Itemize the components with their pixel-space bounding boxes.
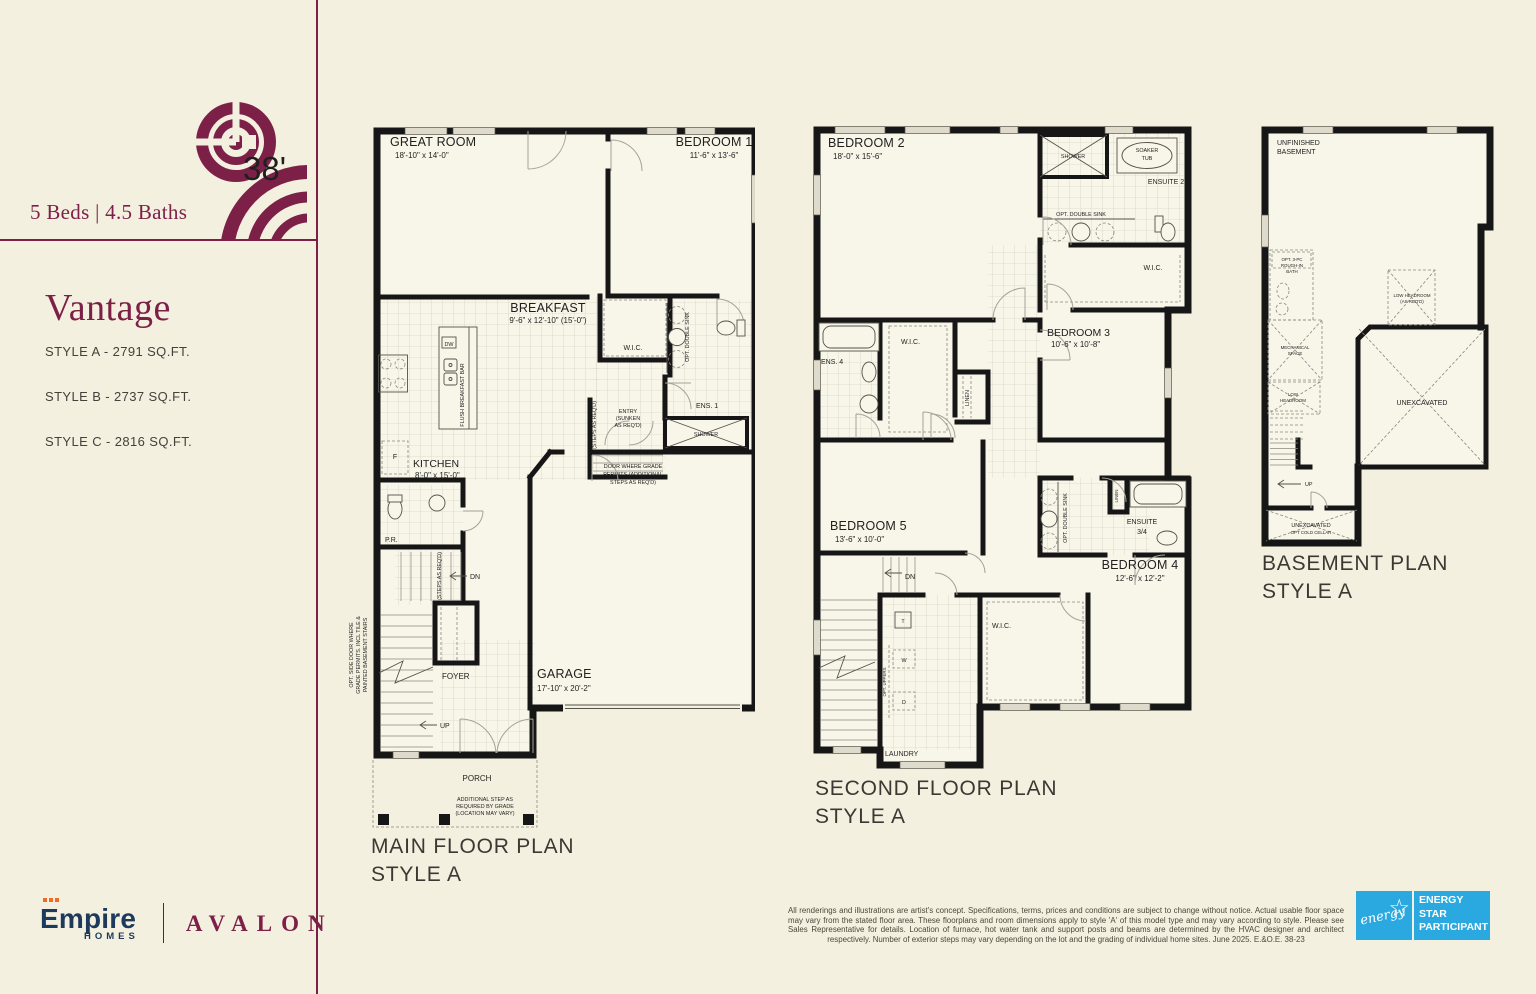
main-floor-plan-drawing: GREAT ROOM 18'-10" x 14'-0" BEDROOM 1 11… bbox=[347, 115, 755, 860]
label-entry-1: ENTRY bbox=[619, 409, 638, 415]
label-lowhead2-1: LOW bbox=[1288, 392, 1299, 397]
label-addl-2: REQUIRED BY GRADE bbox=[456, 804, 514, 810]
label-bedroom1: BEDROOM 1 bbox=[676, 135, 753, 149]
label-wic: W.I.C. bbox=[623, 345, 642, 352]
label-bedroom4-dim: 12'-6" x 12'-2" bbox=[1115, 574, 1164, 583]
energy-star-logo: energy ☆ ENERGY STAR PARTICIPANT bbox=[1356, 891, 1490, 940]
style-a: STYLE A - 2791 SQ.FT. bbox=[45, 344, 190, 359]
label-kitchen: KITCHEN bbox=[413, 458, 459, 470]
label-rough-3: BATH bbox=[1286, 269, 1297, 274]
label-fridge: F bbox=[393, 454, 397, 461]
label-door-grade-1: DOOR WHERE GRADE bbox=[604, 464, 663, 470]
label-opt-double-sink-34: OPT. DOUBLE SINK bbox=[1063, 493, 1069, 543]
label-bedroom5: BEDROOM 5 bbox=[830, 519, 907, 533]
label-great-room: GREAT ROOM bbox=[390, 135, 476, 149]
label-dw: DW bbox=[445, 342, 455, 348]
community-name: AVALON bbox=[186, 909, 334, 937]
label-door-grade-2: PERMITS (ADDITIONAL bbox=[603, 472, 663, 478]
label-bedroom3-dim: 10'-6" x 10'-8" bbox=[1051, 340, 1100, 349]
label-entry-2: (SUNKEN bbox=[616, 416, 640, 422]
label-bedroom4: BEDROOM 4 bbox=[1102, 558, 1179, 572]
sidebar-divider bbox=[316, 0, 318, 994]
empire-sub: HOMES bbox=[84, 931, 139, 942]
label-flush-bar: FLUSH BREAKFAST BAR bbox=[460, 363, 466, 427]
brand-lockup: Empire HOMES AVALON bbox=[40, 903, 334, 943]
empire-wordmark: Empire bbox=[40, 905, 139, 933]
label-up-basement: UP bbox=[1305, 482, 1313, 488]
label-garage-dim: 17'-10" x 20'-2" bbox=[537, 684, 591, 693]
empire-dots-icon bbox=[43, 898, 59, 902]
basement-plan-title: BASEMENT PLAN STYLE A bbox=[1262, 550, 1448, 606]
label-lowhead-1: LOW HEADROOM bbox=[1393, 293, 1430, 298]
label-foyer: FOYER bbox=[442, 672, 470, 681]
main-garage-door bbox=[563, 704, 742, 713]
label-shower: SHOWER bbox=[694, 432, 718, 438]
label-ensuite34-2: 3/4 bbox=[1137, 529, 1147, 536]
label-dn-2: DN bbox=[905, 574, 915, 581]
lot-width-logo: 38' bbox=[185, 90, 307, 240]
label-soaker-2: TUB bbox=[1142, 156, 1153, 162]
label-ensuite2: ENSUITE 2 bbox=[1148, 179, 1184, 186]
beds-baths: 5 Beds | 4.5 Baths bbox=[30, 200, 187, 225]
style-b: STYLE B - 2737 SQ.FT. bbox=[45, 389, 191, 404]
label-side-door-1: OPT. SIDE DOOR WHERE bbox=[349, 622, 355, 688]
label-wic-lower: W.I.C. bbox=[992, 623, 1011, 630]
label-bedroom5-dim: 13'-6" x 10'-0" bbox=[835, 535, 884, 544]
label-steps-reqd-entry: (STEPS AS REQ'D) bbox=[592, 401, 598, 449]
label-cold-1: UNEXCAVATED bbox=[1291, 523, 1330, 529]
main-plan-title: MAIN FLOOR PLAN STYLE A bbox=[371, 833, 574, 889]
legal-disclaimer: All renderings and illustrations are art… bbox=[788, 906, 1344, 945]
label-garage: GARAGE bbox=[537, 667, 592, 681]
label-side-door-3: PAINTED BASEMENT STAIRS bbox=[363, 617, 369, 692]
label-wic-left: W.I.C. bbox=[901, 339, 920, 346]
energy-star-emblem: energy ☆ bbox=[1356, 891, 1412, 940]
label-ens4: ENS. 4 bbox=[821, 359, 843, 366]
label-breakfast: BREAKFAST bbox=[510, 301, 586, 315]
label-bedroom3: BEDROOM 3 bbox=[1047, 327, 1110, 339]
label-lowhead-2: (AS REQ'D) bbox=[1400, 299, 1424, 304]
label-porch: PORCH bbox=[463, 774, 492, 783]
label-breakfast-dim: 9'-6" x 12'-10" (15'-0") bbox=[509, 316, 586, 325]
label-rough-2: ROUGH-IN bbox=[1281, 263, 1303, 268]
label-unfinished-1: UNFINISHED bbox=[1277, 140, 1320, 147]
label-cold-2: OPT COLD CELLAR bbox=[1291, 530, 1332, 535]
label-wic-top: W.I.C. bbox=[1143, 265, 1162, 272]
label-entry-3: AS REQ'D) bbox=[614, 423, 641, 429]
label-pr: P.R. bbox=[385, 537, 398, 544]
energy-star-text: ENERGY STAR PARTICIPANT bbox=[1412, 891, 1490, 940]
second-plan-title: SECOND FLOOR PLAN STYLE A bbox=[815, 775, 1057, 831]
label-mech-2: SPACE bbox=[1288, 351, 1303, 356]
label-steps-reqd-stairs: (STEPS AS REQ'D) bbox=[437, 552, 443, 600]
label-up: UP bbox=[440, 723, 450, 730]
label-ens1: ENS. 1 bbox=[696, 403, 718, 410]
second-floor-plan-drawing: BEDROOM 2 18'-0" x 15'-6" SHOWER SOAKER … bbox=[805, 120, 1200, 775]
label-laundry: LAUNDRY bbox=[885, 751, 919, 758]
label-bedroom1-dim: 11'-6" x 13'-6" bbox=[690, 151, 739, 160]
label-opt-double-sink-2: OPT. DOUBLE SINK bbox=[1056, 212, 1106, 218]
label-ensuite34-1: ENSUITE bbox=[1127, 519, 1158, 526]
label-opt-uppers: OPT. UPPERS bbox=[882, 667, 887, 696]
label-dn: DN bbox=[470, 574, 480, 581]
brand-divider bbox=[163, 903, 164, 943]
basement-plan-drawing: UNFINISHED BASEMENT OPT. 3-PC ROUGH-IN B… bbox=[1255, 115, 1500, 555]
label-door-grade-3: STEPS AS REQ'D) bbox=[610, 480, 656, 486]
label-linen-top: LINEN bbox=[965, 390, 971, 406]
style-c: STYLE C - 2816 SQ.FT. bbox=[45, 434, 192, 449]
style-list: STYLE A - 2791 SQ.FT. STYLE B - 2737 SQ.… bbox=[45, 341, 192, 454]
label-linen-34: LINEN bbox=[1114, 490, 1119, 503]
energy-star-icon: ☆ bbox=[1388, 897, 1410, 921]
label-opt-double-sink: OPT. DOUBLE SINK bbox=[685, 312, 691, 362]
label-addl-1: ADDITIONAL STEP AS bbox=[457, 797, 513, 803]
label-side-door-2: GRADE PERMITS. INCL TILE & bbox=[356, 616, 362, 694]
label-shower2: SHOWER bbox=[1061, 154, 1085, 160]
label-soaker-1: SOAKER bbox=[1136, 148, 1159, 154]
floorplan-flyer: 38' 5 Beds | 4.5 Baths Vantage STYLE A -… bbox=[0, 0, 1536, 994]
label-addl-3: (LOCATION MAY VARY) bbox=[455, 811, 514, 817]
empire-logo: Empire HOMES bbox=[40, 905, 139, 942]
lot-width-label: 38' bbox=[243, 150, 286, 187]
label-lowhead2-2: HEADROOM bbox=[1280, 398, 1306, 403]
label-kitchen-dim: 8'-0" x 15'-0" bbox=[415, 471, 460, 480]
label-mech-1: MECHANICAL bbox=[1281, 345, 1310, 350]
label-unfinished-2: BASEMENT bbox=[1277, 149, 1316, 156]
label-d: D bbox=[902, 700, 906, 706]
label-bedroom2: BEDROOM 2 bbox=[828, 136, 905, 150]
label-rough-1: OPT. 3-PC bbox=[1282, 257, 1303, 262]
label-bedroom2-dim: 18'-0" x 15'-6" bbox=[833, 152, 882, 161]
label-great-room-dim: 18'-10" x 14'-0" bbox=[395, 151, 449, 160]
model-name: Vantage bbox=[45, 286, 171, 330]
label-unexcavated: UNEXCAVATED bbox=[1397, 400, 1448, 407]
